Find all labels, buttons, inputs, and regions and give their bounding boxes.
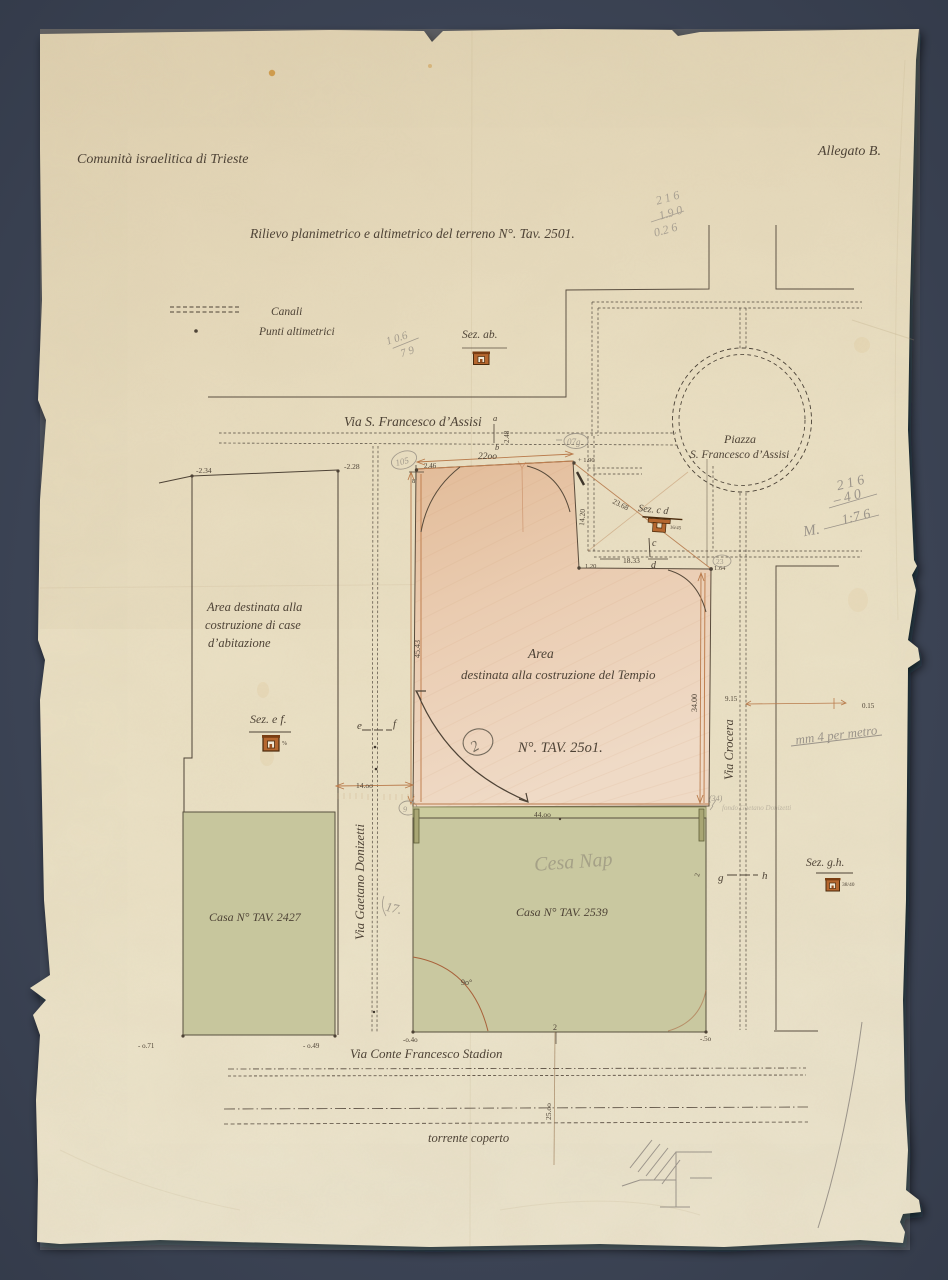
svg-text:costruzione di case: costruzione di case <box>205 618 301 632</box>
svg-text:45.43: 45.43 <box>413 640 422 658</box>
svg-text:Punti altimetrici: Punti altimetrici <box>258 326 335 338</box>
svg-text:9: 9 <box>403 805 407 814</box>
svg-text:+ 1.90: + 1.90 <box>578 457 595 464</box>
svg-text:h: h <box>762 870 768 882</box>
svg-text:d’abitazione: d’abitazione <box>208 636 271 650</box>
svg-text:Rilievo planimetrico e altimet: Rilievo planimetrico e altimetrico del t… <box>249 226 575 241</box>
svg-text:1.64: 1.64 <box>714 565 726 572</box>
svg-text:9o°: 9o° <box>461 978 472 987</box>
svg-text:14.20: 14.20 <box>577 508 587 526</box>
svg-text:e: e <box>357 720 362 732</box>
svg-text:-o.4o: -o.4o <box>403 1036 418 1044</box>
svg-text:c: c <box>652 538 657 549</box>
svg-text:16/45: 16/45 <box>670 526 682 532</box>
svg-text:2.48: 2.48 <box>503 430 511 443</box>
svg-text:Via S. Francesco d’Assisi: Via S. Francesco d’Assisi <box>344 414 482 429</box>
svg-text:Via Crocera: Via Crocera <box>722 719 736 780</box>
svg-text:25.oo: 25.oo <box>544 1103 553 1120</box>
svg-text:38/40: 38/40 <box>842 882 855 888</box>
svg-text:1.20: 1.20 <box>585 563 596 570</box>
svg-text:07g: 07g <box>567 437 581 447</box>
svg-text:S. Francesco d’Assisi: S. Francesco d’Assisi <box>690 449 789 461</box>
svg-text:Canali: Canali <box>271 306 302 318</box>
svg-text:-.5o: -.5o <box>700 1035 712 1043</box>
svg-text:Sez. ab.: Sez. ab. <box>462 329 497 341</box>
svg-text:Sez. g.h.: Sez. g.h. <box>806 857 844 869</box>
svg-text:Area: Area <box>527 646 554 661</box>
svg-text:Casa N° TAV. 2427: Casa N° TAV. 2427 <box>209 910 302 924</box>
svg-text:9.15: 9.15 <box>725 695 738 703</box>
svg-text:%: % <box>282 741 287 747</box>
svg-text:Casa N° TAV. 2539: Casa N° TAV. 2539 <box>516 905 608 919</box>
svg-text:18.33: 18.33 <box>623 556 640 565</box>
svg-text:g: g <box>718 872 724 884</box>
svg-text:fondo Gaetano Donizetti: fondo Gaetano Donizetti <box>722 804 791 812</box>
svg-text:0.15: 0.15 <box>862 702 875 710</box>
svg-text:Piazza: Piazza <box>723 432 756 446</box>
svg-text:2: 2 <box>553 1023 557 1032</box>
svg-text:a: a <box>493 413 497 423</box>
svg-text:-2.34: -2.34 <box>196 466 212 475</box>
svg-text:torrente coperto: torrente coperto <box>428 1131 509 1145</box>
svg-text:23: 23 <box>716 557 724 566</box>
svg-text:N°. TAV. 25o1.: N°. TAV. 25o1. <box>517 740 603 756</box>
svg-text:Comunità israelitica di Triest: Comunità israelitica di Trieste <box>77 152 249 167</box>
svg-text:(34): (34) <box>709 794 723 803</box>
svg-text:44.oo: 44.oo <box>534 810 551 819</box>
svg-text:Area destinata alla: Area destinata alla <box>206 600 302 614</box>
svg-text:34.00: 34.00 <box>690 694 699 712</box>
svg-text:- o.49: - o.49 <box>303 1042 320 1050</box>
svg-text:8: 8 <box>412 478 415 485</box>
svg-text:Via Conte Francesco Stadion: Via Conte Francesco Stadion <box>350 1046 502 1061</box>
svg-text:destinata alla costruzione del: destinata alla costruzione del Tempio <box>461 667 656 682</box>
svg-text:Allegato B.: Allegato B. <box>817 144 881 159</box>
svg-text:- o.71: - o.71 <box>138 1042 155 1050</box>
svg-text:2.46: 2.46 <box>424 462 437 470</box>
svg-text:Sez. e f.: Sez. e f. <box>250 712 287 726</box>
svg-text:14.oo: 14.oo <box>356 781 373 790</box>
svg-text:22oo: 22oo <box>478 452 497 462</box>
svg-text:-2.28: -2.28 <box>344 462 360 471</box>
svg-text:M.: M. <box>801 522 821 541</box>
svg-text:Via Gaetano Donizetti: Via Gaetano Donizetti <box>352 824 367 940</box>
svg-text:b: b <box>495 442 499 452</box>
